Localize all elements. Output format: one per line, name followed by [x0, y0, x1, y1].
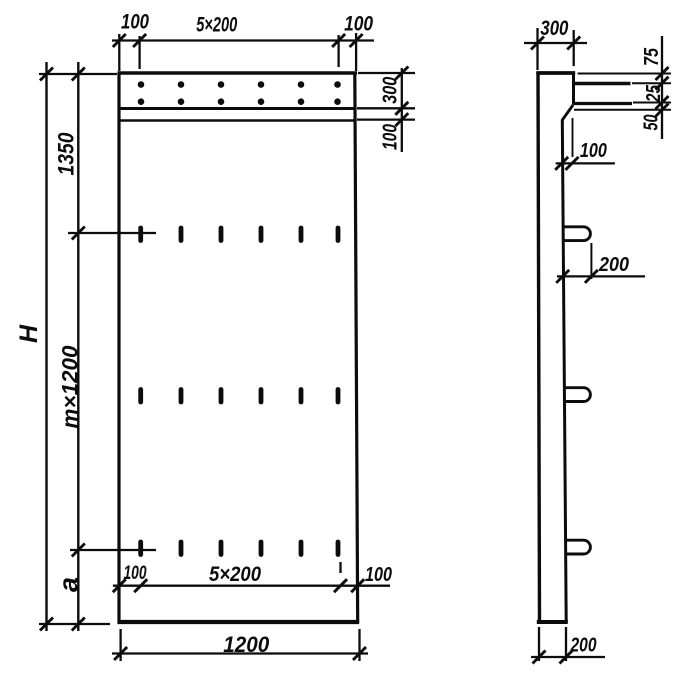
svg-text:100: 100 — [580, 140, 607, 162]
svg-text:200: 200 — [570, 635, 597, 657]
svg-text:m×1200: m×1200 — [58, 345, 83, 429]
svg-text:100: 100 — [124, 563, 147, 584]
svg-text:100: 100 — [365, 564, 392, 586]
svg-text:H: H — [15, 324, 43, 343]
svg-text:75: 75 — [641, 47, 663, 66]
svg-text:100: 100 — [121, 11, 149, 34]
svg-text:1350: 1350 — [54, 132, 79, 176]
svg-text:300: 300 — [540, 17, 568, 40]
svg-text:25: 25 — [643, 84, 665, 102]
svg-text:5×200: 5×200 — [196, 14, 237, 37]
svg-text:50: 50 — [641, 115, 663, 131]
svg-text:100: 100 — [344, 13, 373, 36]
svg-text:300: 300 — [380, 77, 402, 104]
svg-text:1200: 1200 — [223, 632, 270, 657]
svg-text:5×200: 5×200 — [209, 563, 261, 586]
svg-text:200: 200 — [598, 254, 629, 276]
svg-text:100: 100 — [380, 124, 402, 150]
svg-text:a: a — [54, 577, 84, 592]
